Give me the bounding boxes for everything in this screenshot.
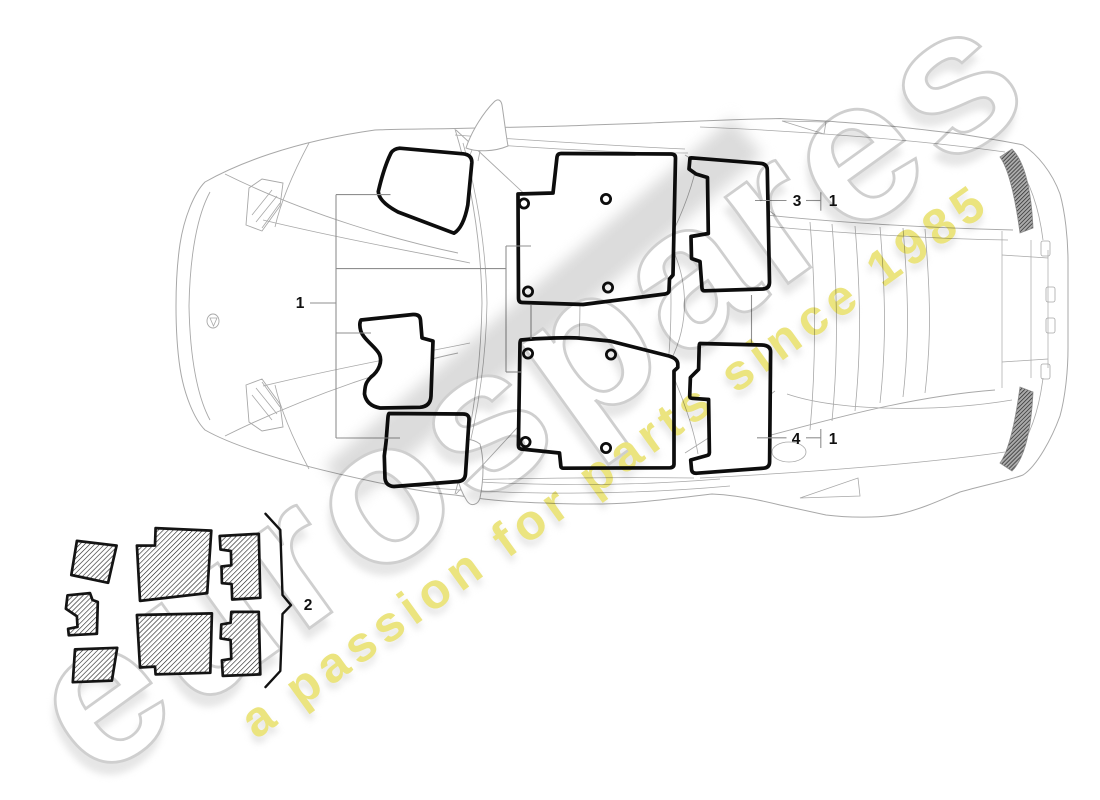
svg-text:eurospares: eurospares — [0, 0, 1067, 800]
svg-text:1: 1 — [829, 431, 838, 448]
svg-text:4: 4 — [792, 431, 801, 448]
svg-text:1: 1 — [296, 295, 305, 312]
